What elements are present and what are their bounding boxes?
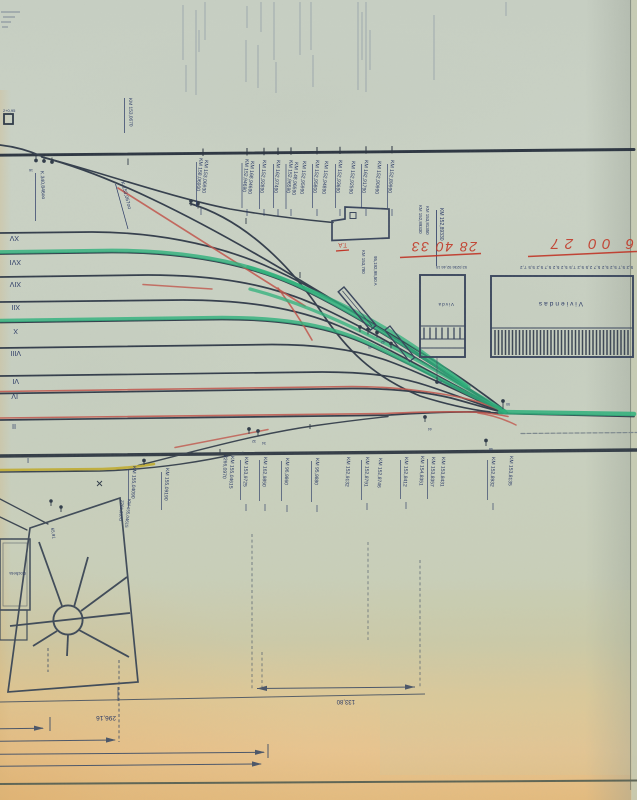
svg-text:T.A: T.A — [338, 241, 347, 247]
svg-text:VIII: VIII — [10, 349, 21, 356]
svg-text:32: 32 — [252, 439, 256, 443]
svg-text:KM 153,0670: KM 153,0670 — [127, 98, 134, 127]
svg-text:42: 42 — [381, 340, 385, 344]
svg-text:KM 152,89330: KM 152,89330 — [418, 205, 423, 234]
svg-text:133,80: 133,80 — [336, 698, 355, 704]
svg-text:52,9236 92,46 15: 52,9236 92,46 15 — [435, 265, 467, 270]
svg-text:XII: XII — [11, 303, 20, 310]
svg-text:XVI: XVI — [10, 258, 21, 265]
svg-text:44: 44 — [428, 427, 432, 431]
svg-text:5,2 5,7 5,2 5,2 5,7 2,5 5,2 7,: 5,2 5,7 5,2 5,2 5,7 2,5 5,2 7,5 5,2 5,2 … — [520, 265, 633, 270]
svg-text:46: 46 — [438, 380, 442, 384]
svg-text:X: X — [13, 327, 18, 334]
svg-text:II: II — [12, 422, 16, 429]
svg-text:XV: XV — [9, 234, 19, 241]
svg-text:40: 40 — [368, 345, 372, 349]
svg-text:28 40 33: 28 40 33 — [411, 239, 479, 255]
svg-text:IV: IV — [11, 392, 18, 399]
svg-text:2266,0970: 2266,0970 — [221, 455, 228, 479]
svg-text:6 00 27: 6 00 27 — [545, 235, 634, 252]
svg-text:34: 34 — [262, 441, 266, 445]
svg-text:Vivda: Vivda — [438, 302, 454, 307]
svg-text:KM 152,89330: KM 152,89330 — [438, 208, 444, 241]
svg-text:KM 153,81350: KM 153,81350 — [425, 206, 430, 235]
svg-text:2+0,95: 2+0,95 — [3, 108, 16, 113]
svg-text:Cochera: Cochera — [9, 571, 26, 576]
svg-text:16: 16 — [29, 168, 33, 172]
svg-text:VI: VI — [12, 377, 19, 384]
svg-text:95,192,98,50 A: 95,192,98,50 A — [373, 256, 378, 286]
svg-text:XIV: XIV — [9, 280, 21, 287]
svg-text:Viviendas: Viviendas — [537, 300, 583, 307]
svg-text:I: I — [27, 456, 29, 463]
svg-text:296,16: 296,16 — [96, 714, 116, 721]
svg-text:KM 153,780: KM 153,780 — [361, 250, 366, 274]
svg-text:48: 48 — [489, 447, 493, 451]
svg-text:50: 50 — [506, 402, 510, 406]
